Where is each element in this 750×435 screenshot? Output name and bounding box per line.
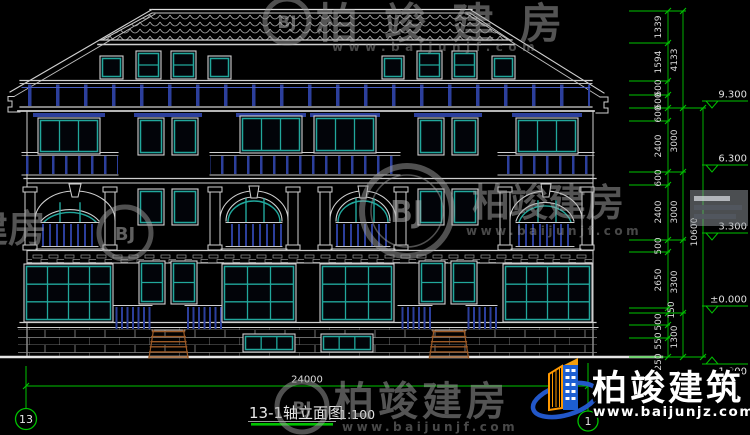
entry-railing [398,307,432,329]
level-markers: 9.300 6.300 3.300 ±0.000 -1.300 [702,90,748,378]
window [24,264,113,322]
dim-label: 1339 [654,15,664,38]
dim-label: 600 [654,169,664,186]
grid-bubble-right-label: 1 [585,415,592,428]
window [208,56,231,79]
window [100,56,123,79]
dim-label: 2650 [654,268,664,291]
top-balcony-railing [18,81,594,112]
window [138,189,164,225]
dim-label: 2400 [654,200,664,223]
entry-railing [185,307,222,329]
window [492,56,515,79]
window [240,116,302,153]
window [222,264,296,322]
watermark-brand: 柏竣建房 [334,379,510,425]
window [172,118,198,155]
logo-brand-text: 柏竣建筑 [592,368,744,409]
window [382,56,404,79]
logo-roof [562,358,578,366]
window [171,261,197,304]
window [314,116,376,153]
dim-label: 500 [654,237,664,254]
watermark-monogram: BJ [390,195,424,230]
window [172,189,198,225]
grid-bubble-left-label: 13 [19,413,33,426]
window [139,261,165,304]
watermark-brand: 柏竣建房 [0,207,46,251]
watermark-site: www.baijunjf.com [342,420,518,434]
cad-elevation-canvas: 1339 1594 600 600 600 2400 600 2400 500 … [0,0,750,435]
entry-railing [466,307,497,329]
logo-site-text: www.baijunjz.com [593,404,750,420]
gutter-end-left [8,97,20,113]
window [136,51,161,79]
window [38,118,100,154]
level-label: 6.300 [718,154,747,165]
watermark-monogram: BJ [292,399,311,419]
watermark-brand: 柏竣建房 [472,181,624,225]
dim-label: 3000 [670,200,680,223]
dim-label: 600 [654,105,664,122]
window [419,261,445,304]
watermark-monogram: BJ [115,224,135,245]
window [452,51,477,79]
level-label: ±0.000 [710,295,747,306]
dim-label: 4133 [670,49,680,72]
dim-label: 3000 [670,129,680,152]
watermark-site: www.baijunjf.com [332,40,540,54]
stone-base [18,328,597,357]
window [451,261,477,304]
dim-label: 550 [654,332,664,349]
level-label: 9.300 [718,90,747,101]
dim-label: 1594 [654,50,664,73]
window [243,334,295,352]
dim-label: 500 [654,313,664,330]
watermark-site: www.baijunjf.com [466,224,642,238]
third-floor-railings [22,153,594,176]
window [503,264,592,322]
window [418,118,444,155]
dim-label: 2400 [654,134,664,157]
info-box [690,190,748,226]
window [138,118,164,155]
entry-railing [114,307,152,329]
watermark-monogram: BJ [277,13,296,33]
window [171,51,196,79]
window [320,264,394,322]
dim-label: 150 [667,301,677,318]
logo-building-blue [563,365,578,410]
window-header-bands [33,113,582,117]
dim-label: 3300 [670,270,680,293]
gutter-end-right [596,97,608,113]
window [417,51,442,79]
window [516,118,578,154]
window [321,334,373,352]
window [452,118,478,155]
dim-label: 1300 [670,325,680,348]
dim-label: 250 [654,353,664,370]
